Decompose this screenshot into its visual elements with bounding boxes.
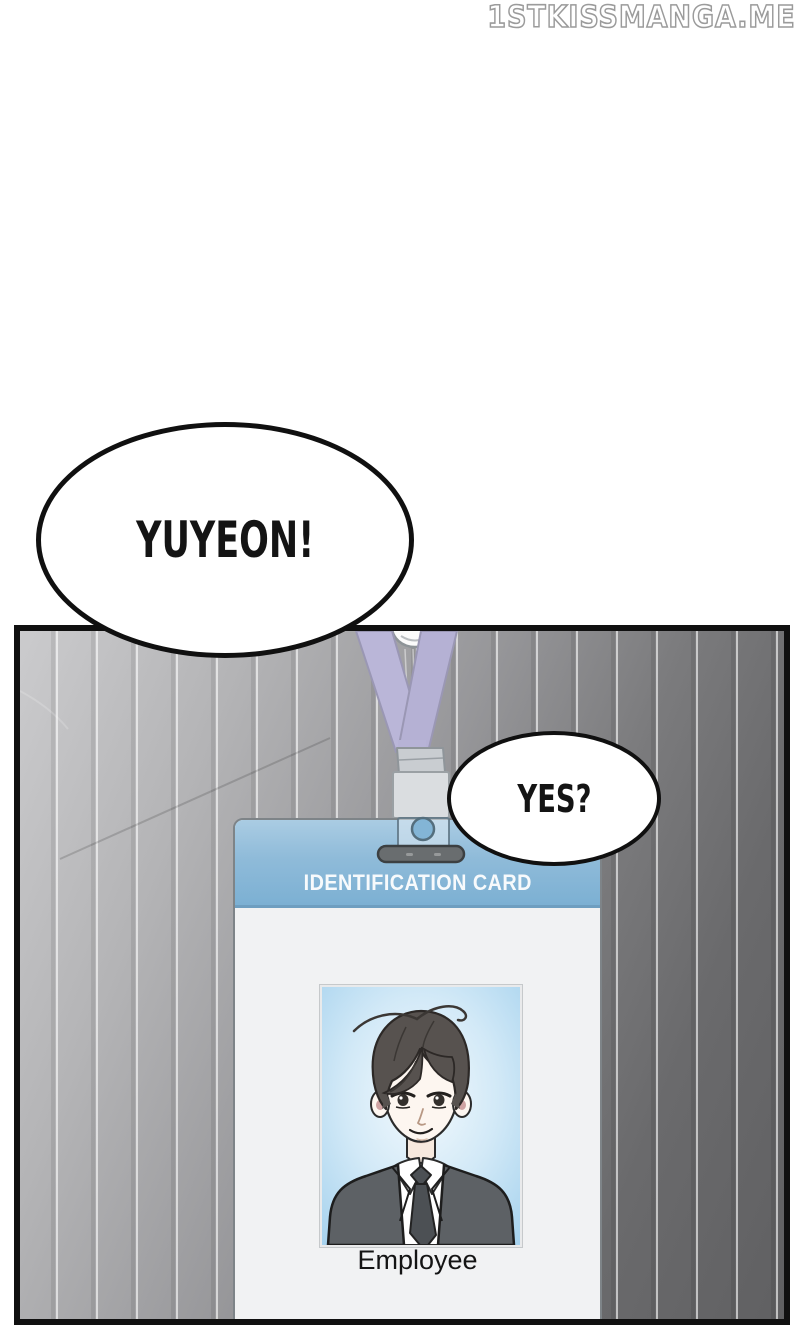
card-slot-bar [378,846,464,862]
slot-bar-highlight [434,853,441,856]
speech-bubble-yes: YES? [447,731,661,866]
id-card: IDENTIFICATION CARD [233,818,602,1325]
slot-bar-highlight [406,853,413,856]
lanyard-connector [397,748,445,774]
id-card-title: IDENTIFICATION CARD [303,870,531,905]
employee-label: Employee [235,1245,600,1276]
site-watermark: 1STKISSMANGA.ME [488,0,796,35]
manga-page: { "watermark": { "text": "1STKISSMANGA.M… [0,0,800,1280]
lanyard-straps [356,631,457,754]
id-photo [320,985,522,1247]
manga-panel: IDENTIFICATION CARD [14,625,790,1325]
suit-seam-line [20,691,68,729]
speech-text-yuyeon: YUYEON! [136,511,314,569]
speech-bubble-yuyeon: YUYEON! [36,422,414,658]
clip-hole [412,818,434,840]
speech-text-yes: YES? [517,777,591,821]
